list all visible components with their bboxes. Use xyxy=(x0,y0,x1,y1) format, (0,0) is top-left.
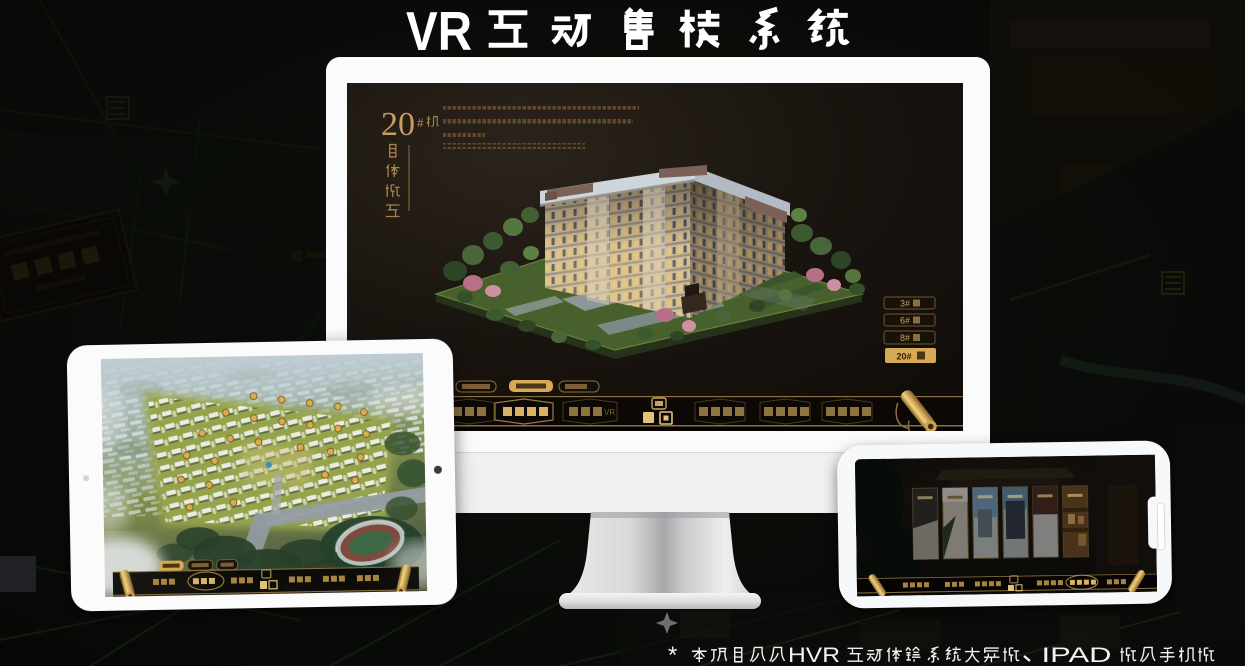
svg-text:8#: 8# xyxy=(900,333,910,343)
svg-text:#: # xyxy=(417,115,424,130)
svg-text:*: * xyxy=(668,642,677,666)
svg-text:VR: VR xyxy=(406,0,472,60)
svg-text:6#: 6# xyxy=(900,316,910,326)
svg-text:20#: 20# xyxy=(896,352,911,362)
svg-text:20: 20 xyxy=(381,106,415,143)
svg-text:3#: 3# xyxy=(900,299,910,309)
svg-text:VR: VR xyxy=(604,408,615,417)
svg-text:HVR: HVR xyxy=(788,644,840,666)
svg-text:IPAD: IPAD xyxy=(1042,644,1112,666)
